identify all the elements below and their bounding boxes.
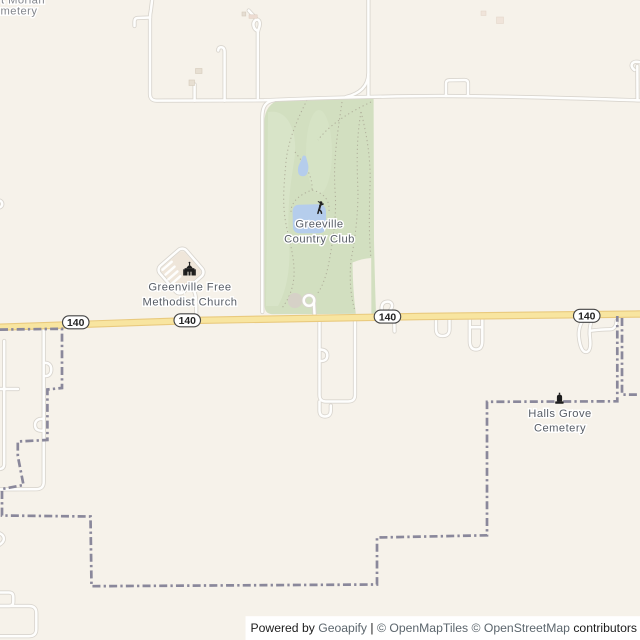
svg-text:Greeville: Greeville — [295, 218, 343, 230]
svg-text:Powered by Geoapify | © OpenMa: Powered by Geoapify | © OpenMapTiles © O… — [250, 621, 637, 635]
svg-text:Greenville Free: Greenville Free — [148, 282, 231, 294]
svg-text:Cemetery: Cemetery — [534, 423, 586, 435]
svg-text:Methodist Church: Methodist Church — [143, 296, 238, 308]
svg-text:140: 140 — [179, 316, 197, 327]
svg-text:140: 140 — [379, 313, 397, 324]
svg-text:140: 140 — [578, 312, 596, 323]
svg-text:metery: metery — [1, 6, 38, 18]
svg-text:140: 140 — [67, 318, 85, 329]
svg-text:Halls Grove: Halls Grove — [528, 408, 591, 420]
svg-text:Country Club: Country Club — [284, 234, 355, 246]
